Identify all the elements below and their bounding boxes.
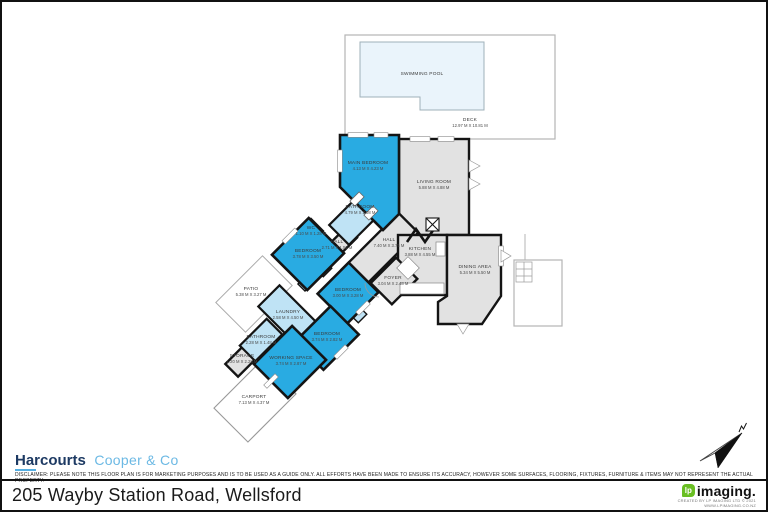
svg-text:4.13 M X 4.23 M: 4.13 M X 4.23 M — [353, 166, 384, 171]
svg-text:3.88 M X 4.55 M: 3.88 M X 4.55 M — [405, 252, 436, 257]
svg-text:4.79 M X 2.08 M: 4.79 M X 2.08 M — [345, 210, 376, 215]
floorplan-page: SWIMMING POOL DECK 12.97 M X 10.81 M MAI… — [0, 0, 768, 512]
deck-steps — [516, 262, 532, 282]
svg-text:3.78 M X 3.50 M: 3.78 M X 3.50 M — [293, 254, 324, 259]
svg-text:5.88 M X 4.88 M: 5.88 M X 4.88 M — [419, 185, 450, 190]
address-bar: 205 Wayby Station Road, Wellsford lp ima… — [2, 481, 766, 510]
harcourts-logo: Harcourts Cooper & Co — [15, 452, 179, 470]
svg-text:7.13 M X 4.37 M: 7.13 M X 4.37 M — [239, 400, 270, 405]
svg-text:5.34 M X 5.50 M: 5.34 M X 5.50 M — [460, 270, 491, 275]
lp-imaging-icon: lp — [682, 484, 695, 497]
svg-text:1.10 M X 1.28 M: 1.10 M X 1.28 M — [296, 231, 327, 236]
svg-text:1.20 M X 2.28 M: 1.20 M X 2.28 M — [227, 359, 258, 364]
svg-text:3.74 M X 2.87 M: 3.74 M X 2.87 M — [276, 361, 307, 366]
svg-text:3.74 M X 2.82 M: 3.74 M X 2.82 M — [312, 337, 343, 342]
floor-plan: SWIMMING POOL DECK 12.97 M X 10.81 M MAI… — [2, 2, 768, 480]
svg-text:2.71 M X 1.52 M: 2.71 M X 1.52 M — [322, 245, 353, 250]
svg-text:2.58 M X 4.50 M: 2.58 M X 4.50 M — [273, 315, 304, 320]
svg-text:12.97 M X 10.81 M: 12.97 M X 10.81 M — [452, 123, 488, 128]
svg-text:5.38 M X 3.27 M: 5.38 M X 3.27 M — [236, 292, 267, 297]
svg-text:2.28 M X 1.48 M: 2.28 M X 1.48 M — [246, 340, 277, 345]
compass-icon — [700, 423, 747, 468]
svg-text:3.00 M X 3.28 M: 3.00 M X 3.28 M — [333, 293, 364, 298]
harcourts-wordmark: Harcourts — [15, 452, 86, 469]
dining-area-shape — [438, 235, 501, 324]
svg-text:7.40 M X 3.75 M: 7.40 M X 3.75 M — [374, 243, 405, 248]
lp-imaging-url: WWW.LPIMAGING.CO.NZ — [704, 504, 756, 509]
lp-imaging-logo: lp imaging. CREATED BY LP IMAGING LTD © … — [678, 483, 756, 508]
property-address: 205 Wayby Station Road, Wellsford — [12, 485, 302, 506]
harcourts-suffix: Cooper & Co — [94, 452, 178, 468]
svg-text:3.04 M X 2.48 M: 3.04 M X 2.48 M — [378, 281, 409, 286]
column-symbol — [426, 218, 439, 231]
svg-text:SWIMMING POOL: SWIMMING POOL — [401, 71, 444, 77]
lp-imaging-wordmark: imaging. — [697, 483, 756, 499]
